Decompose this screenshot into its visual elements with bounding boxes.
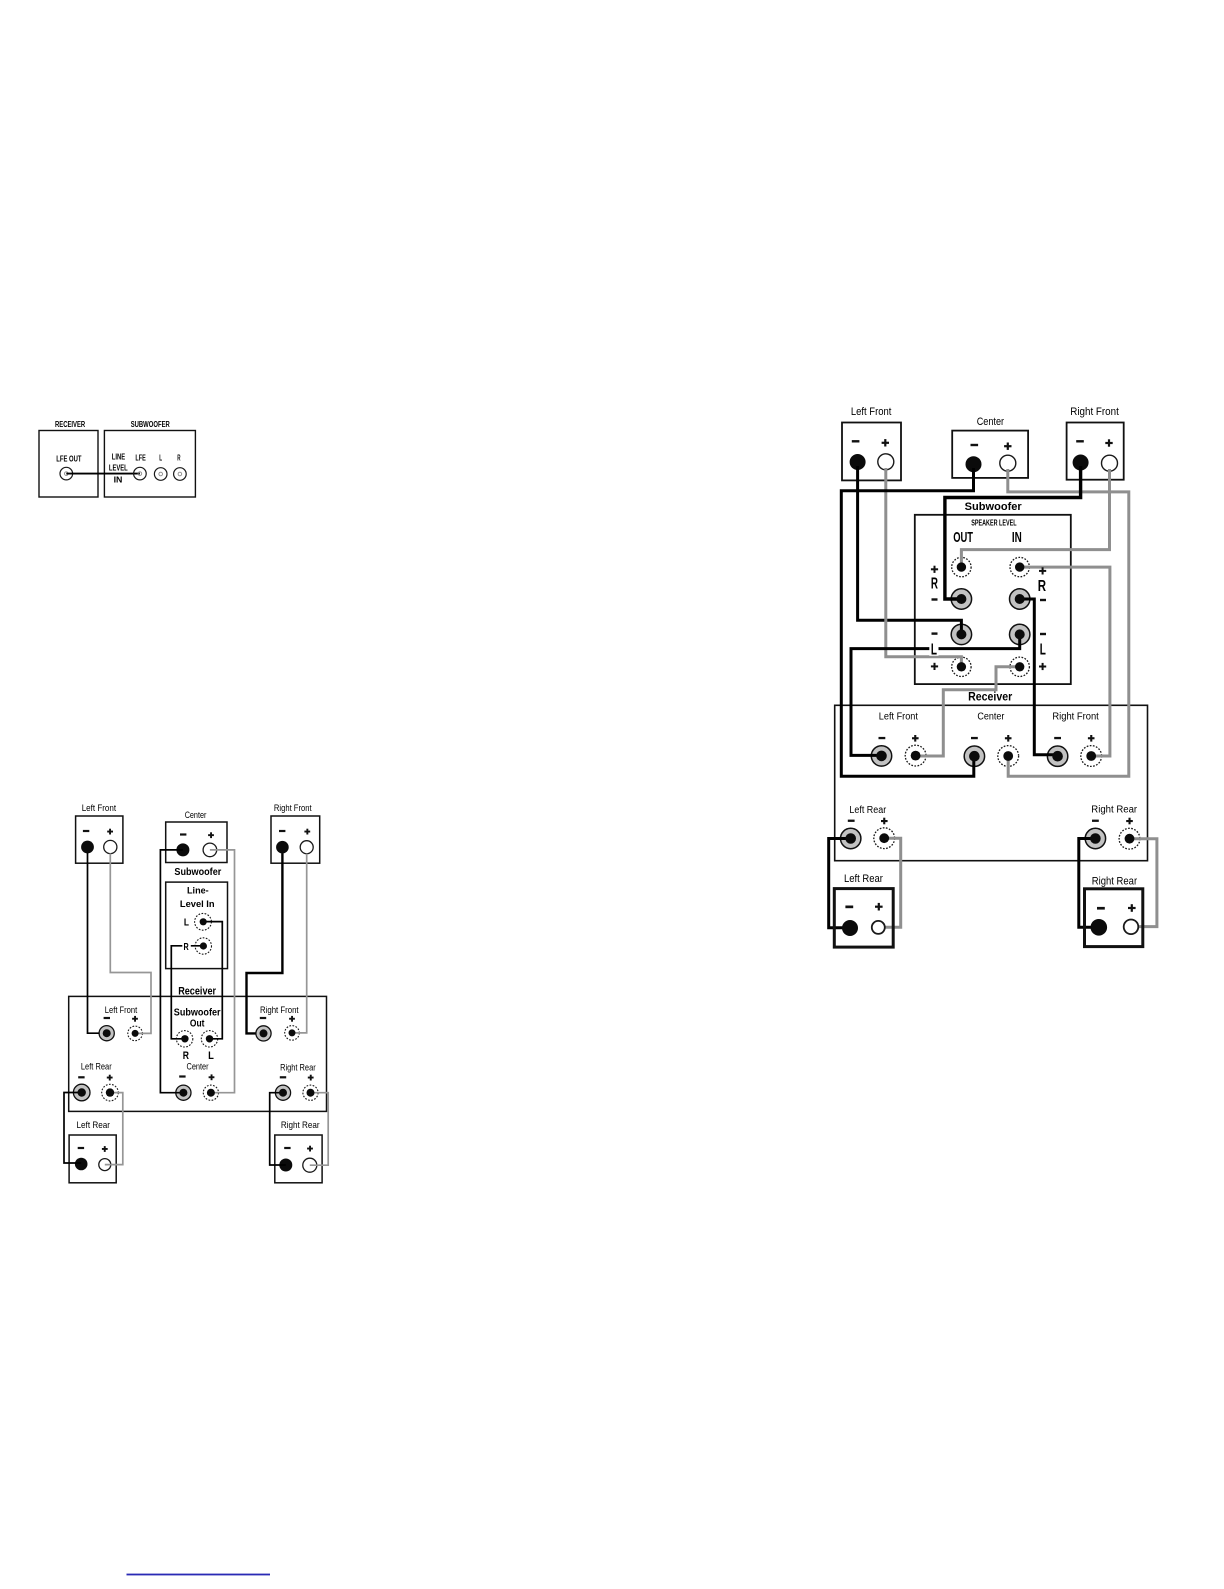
svg-text:SUBWOOFER: SUBWOOFER [131, 419, 171, 429]
svg-text:L: L [159, 453, 162, 463]
svg-text:Level In: Level In [180, 899, 215, 910]
svg-text:IN: IN [1012, 529, 1022, 546]
svg-text:L: L [184, 918, 189, 929]
svg-text:Right Rear: Right Rear [281, 1119, 320, 1130]
svg-text:LEVEL: LEVEL [109, 462, 128, 472]
svg-text:Line-: Line- [187, 885, 209, 896]
svg-text:Right Rear: Right Rear [1091, 805, 1137, 816]
svg-text:R: R [184, 942, 189, 953]
svg-text:Center: Center [187, 1062, 209, 1072]
svg-text:Left Rear: Left Rear [77, 1119, 111, 1130]
svg-text:IN: IN [114, 475, 123, 485]
svg-text:Right Front: Right Front [274, 802, 312, 813]
svg-text:Center: Center [185, 809, 207, 820]
svg-text:Right Rear: Right Rear [1092, 876, 1138, 888]
svg-text:LINE: LINE [112, 452, 125, 462]
svg-text:Center: Center [977, 416, 1005, 428]
svg-text:L: L [1040, 642, 1046, 659]
svg-text:Left Rear: Left Rear [81, 1062, 112, 1072]
svg-text:Left Rear: Left Rear [849, 805, 886, 816]
svg-text:Receiver: Receiver [968, 690, 1012, 704]
svg-text:L: L [931, 642, 937, 659]
svg-text:Left Front: Left Front [879, 711, 918, 722]
svg-text:Center: Center [977, 711, 1005, 722]
svg-text:Left Front: Left Front [105, 1005, 138, 1015]
svg-text:Subwoofer: Subwoofer [174, 867, 221, 878]
svg-text:LFE OUT: LFE OUT [56, 454, 82, 464]
svg-text:Right Front: Right Front [260, 1005, 299, 1015]
svg-text:Right Front: Right Front [1070, 406, 1119, 418]
svg-text:Out: Out [190, 1018, 205, 1029]
svg-text:Right Front: Right Front [1052, 711, 1099, 722]
svg-text:OUT: OUT [953, 529, 973, 546]
svg-text:Subwoofer: Subwoofer [965, 501, 1023, 513]
svg-text:Subwoofer: Subwoofer [174, 1007, 221, 1018]
svg-text:LFE: LFE [135, 453, 146, 463]
svg-text:R: R [183, 1050, 189, 1062]
svg-text:Right Rear: Right Rear [280, 1062, 316, 1072]
svg-text:Left Front: Left Front [82, 802, 117, 813]
svg-text:SPEAKER LEVEL: SPEAKER LEVEL [971, 519, 1016, 528]
svg-text:R: R [1038, 578, 1046, 595]
svg-text:L: L [208, 1050, 214, 1062]
svg-text:R: R [931, 576, 938, 593]
svg-text:R: R [177, 453, 181, 463]
svg-text:Left Front: Left Front [851, 406, 892, 418]
svg-text:RECEIVER: RECEIVER [55, 419, 86, 429]
svg-text:Left Rear: Left Rear [844, 873, 883, 885]
